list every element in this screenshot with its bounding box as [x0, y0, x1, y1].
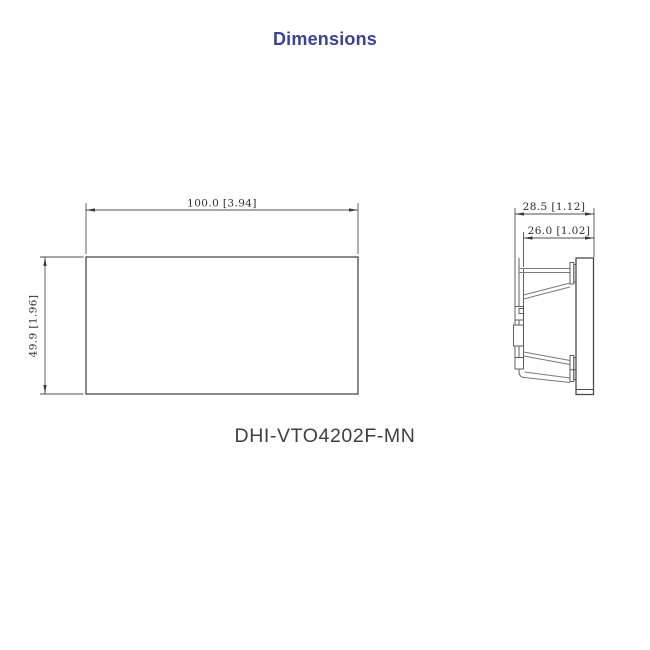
side-body-bottom-corner: [519, 369, 525, 378]
side-bottom-bar: [525, 378, 571, 383]
side-total-depth-label: 28.5 [1.12]: [523, 201, 586, 213]
side-bottom-clip: [574, 358, 576, 380]
front-height-dimension: 49.9 [1.96]: [28, 257, 84, 394]
front-width-dimension: 100.0 [3.94]: [86, 198, 358, 255]
dimensions-drawing: 100.0 [3.94] 49.9 [1.96] 28.5 [1.12]: [0, 0, 650, 650]
front-view: 100.0 [3.94] 49.9 [1.96]: [28, 198, 359, 395]
arrowhead: [349, 208, 358, 211]
arrowhead: [43, 385, 46, 394]
side-view: 28.5 [1.12] 26.0 [1.02]: [514, 201, 595, 395]
front-height-label: 49.9 [1.96]: [28, 295, 40, 358]
arrowhead: [585, 212, 594, 215]
side-bottom-bar: [525, 372, 571, 378]
side-bottom-latch: [524, 356, 571, 365]
front-view-outline: [86, 257, 358, 394]
side-left-tab-notch: [519, 309, 524, 314]
front-width-label: 100.0 [3.94]: [187, 198, 257, 210]
side-top-clip: [570, 263, 574, 285]
side-bottom-clip: [570, 356, 574, 382]
side-front-panel: [576, 258, 594, 395]
arrowhead: [86, 208, 95, 211]
side-left-tab: [515, 358, 524, 370]
side-body-depth-label: 26.0 [1.02]: [528, 225, 591, 237]
page: { "page": { "title": "Dimensions", "mode…: [0, 0, 650, 650]
side-left-tab: [514, 325, 524, 346]
side-top-clip: [574, 265, 576, 283]
side-bottom-latch: [524, 352, 571, 361]
model-number: DHI-VTO4202F-MN: [0, 425, 650, 448]
arrowhead: [43, 257, 46, 266]
